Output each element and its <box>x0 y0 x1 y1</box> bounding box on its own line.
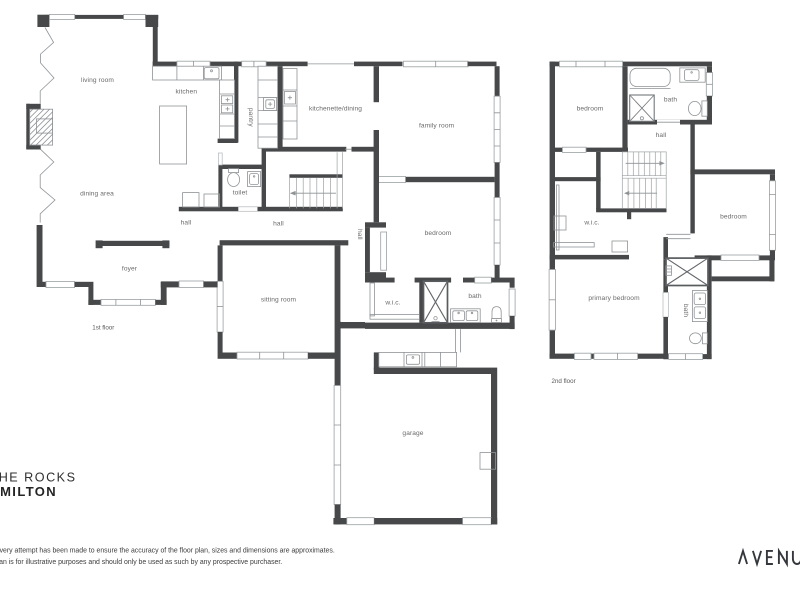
svg-text:hall: hall <box>181 220 192 227</box>
svg-text:kitchen: kitchen <box>176 88 198 95</box>
svg-text:bath: bath <box>468 293 481 300</box>
svg-text:bedroom: bedroom <box>720 214 747 221</box>
svg-text:w.i.c.: w.i.c. <box>384 300 400 307</box>
svg-text:foyer: foyer <box>122 266 138 273</box>
svg-text:Plan is for illustrative purpo: Plan is for illustrative purposes and sh… <box>0 559 282 566</box>
svg-text:HAMILTON: HAMILTON <box>0 484 57 499</box>
svg-text:bedroom: bedroom <box>425 230 452 237</box>
svg-text:bath: bath <box>682 304 689 317</box>
svg-text:toilet: toilet <box>233 189 248 196</box>
svg-text:hall: hall <box>656 132 667 139</box>
svg-text:living room: living room <box>81 77 114 84</box>
svg-text:hall: hall <box>356 229 363 240</box>
svg-text:2nd floor: 2nd floor <box>552 378 576 385</box>
svg-text:THE ROCKS: THE ROCKS <box>0 471 76 485</box>
svg-text:kitchenette/dining: kitchenette/dining <box>309 106 362 113</box>
svg-text:dining area: dining area <box>80 191 114 198</box>
svg-text:w.i.c.: w.i.c. <box>583 220 599 227</box>
svg-text:bedroom: bedroom <box>577 105 604 112</box>
svg-text:Every attempt has been made to: Every attempt has been made to ensure th… <box>0 548 335 555</box>
svg-text:garage: garage <box>402 430 423 437</box>
svg-text:bath: bath <box>664 97 677 104</box>
svg-text:1st floor: 1st floor <box>92 325 114 332</box>
svg-text:sitting room: sitting room <box>261 297 297 304</box>
svg-text:hall: hall <box>273 221 284 228</box>
svg-text:family room: family room <box>419 123 455 130</box>
svg-text:primary bedroom: primary bedroom <box>588 295 640 302</box>
svg-text:pantry: pantry <box>247 108 254 128</box>
